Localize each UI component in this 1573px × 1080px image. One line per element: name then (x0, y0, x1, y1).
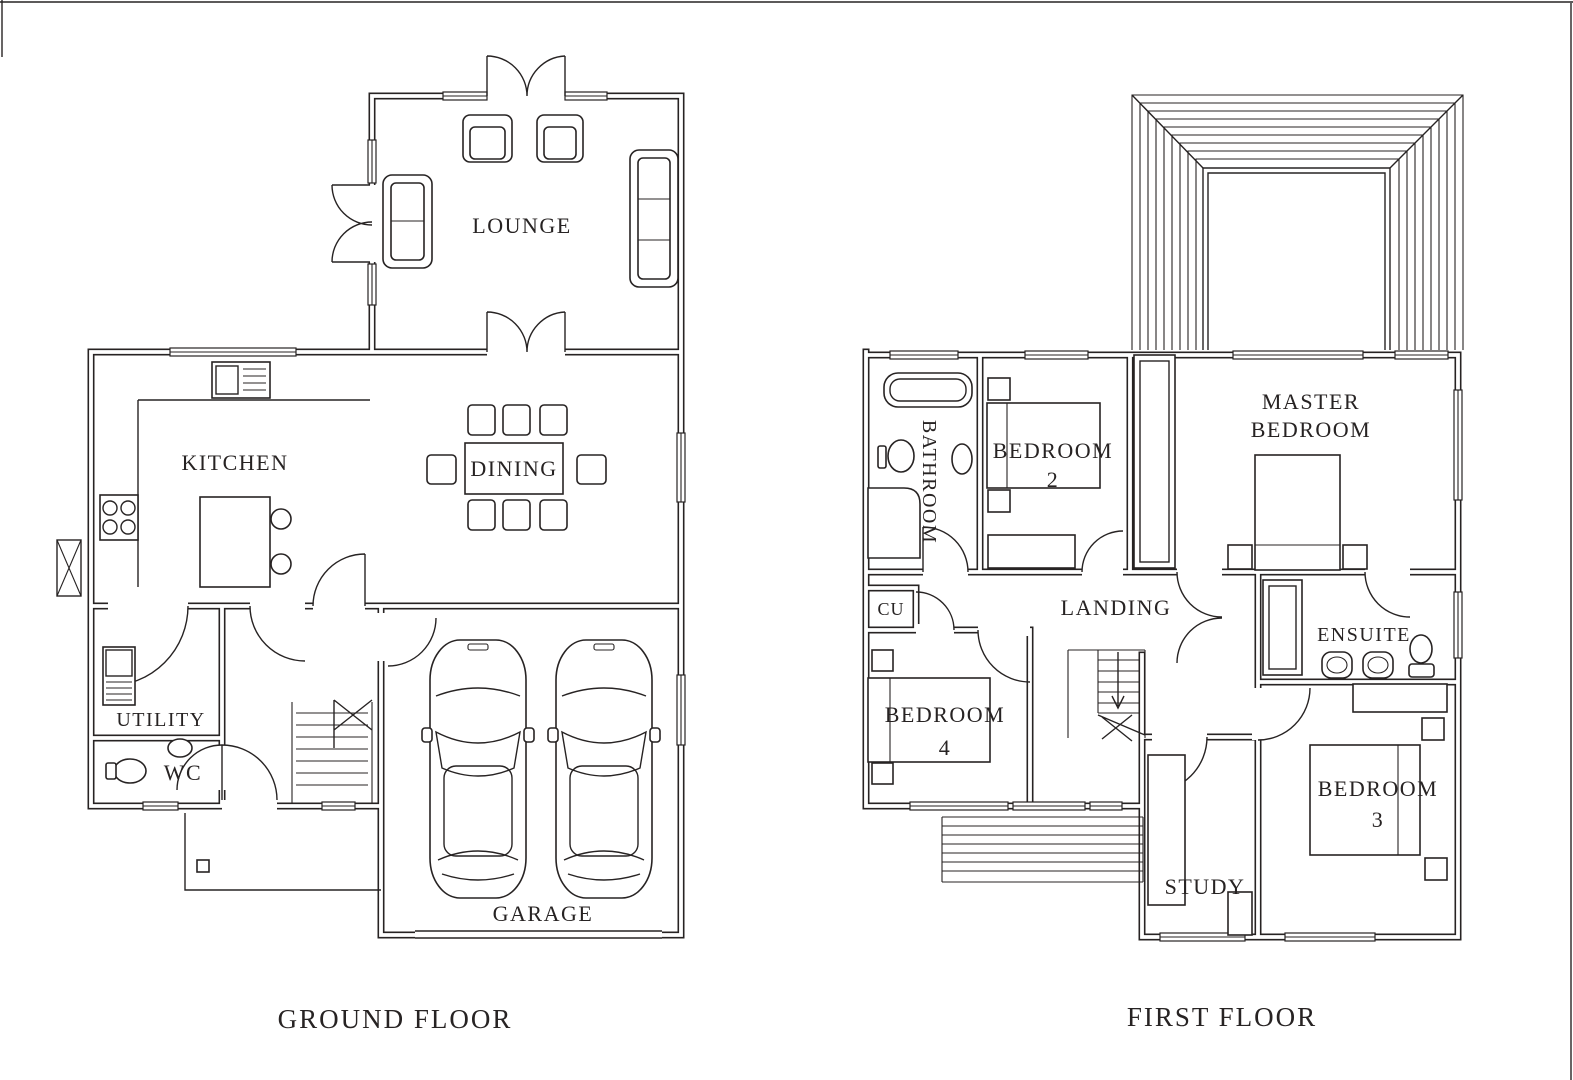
chair (468, 500, 495, 530)
basin-icon (952, 444, 972, 474)
nightstand (872, 650, 893, 671)
window (1285, 933, 1375, 941)
nightstand (1422, 718, 1444, 740)
armchair (537, 115, 583, 162)
ground-floor-labels: LOUNGE KITCHEN DINING UTILITY WC GARAGE … (116, 213, 593, 1034)
window (677, 433, 685, 502)
window (322, 802, 355, 810)
floor-plan-drawing: LOUNGE KITCHEN DINING UTILITY WC GARAGE … (0, 0, 1573, 1080)
window (368, 264, 376, 305)
chair (540, 500, 567, 530)
chair (503, 405, 530, 435)
hall-garage-door (388, 618, 436, 666)
window (443, 92, 487, 100)
room-label-study: STUDY (1165, 874, 1246, 899)
chair (540, 405, 567, 435)
room-label-bathroom: BATHROOM (918, 420, 940, 544)
master-bedroom-furniture (1134, 355, 1367, 570)
toilet-icon (106, 759, 146, 783)
hob-icon (100, 495, 138, 540)
nightstand (872, 763, 893, 784)
room-label-bedroom2: BEDROOM (993, 438, 1114, 463)
first-floor-plan: BATHROOM BEDROOM 2 MASTER BEDROOM CU LAN… (866, 95, 1463, 1032)
window (170, 348, 296, 356)
kitchen-hall-door (250, 606, 305, 661)
nightstand (1228, 545, 1252, 569)
floor-plan-sheet: LOUNGE KITCHEN DINING UTILITY WC GARAGE … (0, 0, 1573, 1080)
toilet-icon (878, 440, 914, 472)
bedroom2-door (1082, 531, 1123, 572)
range-cooker-icon (212, 362, 270, 398)
sofa (383, 175, 432, 268)
room-label-utility: UTILITY (116, 709, 205, 731)
window (1233, 351, 1363, 359)
garage-cars (422, 640, 660, 898)
stair-break-mark (1098, 715, 1145, 741)
window (1454, 592, 1462, 658)
lounge-furniture (383, 115, 678, 287)
chair (468, 405, 495, 435)
window (1013, 802, 1085, 810)
nightstand (1343, 545, 1367, 569)
room-label-master-line1: MASTER (1262, 389, 1360, 414)
first-floor-title: FIRST FLOOR (1127, 1002, 1317, 1032)
ensuite-door (1365, 572, 1410, 617)
stair-direction-flag (334, 700, 372, 748)
bathtub-icon (884, 373, 972, 407)
bed (1255, 455, 1340, 570)
toilet-icon (1409, 635, 1434, 677)
ground-floor-plan: LOUNGE KITCHEN DINING UTILITY WC GARAGE … (57, 56, 685, 1034)
room-label-bedroom4: BEDROOM (885, 702, 1006, 727)
bay-roof-hatch (942, 817, 1143, 882)
window (143, 802, 178, 810)
room-label-ensuite: ENSUITE (1317, 624, 1411, 646)
bedroom2-furniture (987, 378, 1100, 568)
dresser (988, 535, 1075, 568)
nightstand (988, 490, 1010, 512)
nightstand (1425, 858, 1447, 880)
car-icon (422, 640, 534, 898)
room-label-dining: DINING (470, 456, 557, 481)
bedroom4-door (978, 630, 1030, 682)
room-label-wc: WC (164, 760, 202, 785)
wardrobe (1353, 684, 1447, 712)
room-label-cu: CU (877, 599, 904, 619)
window (368, 140, 376, 183)
basin-icon (1322, 652, 1352, 678)
stool (271, 509, 291, 529)
window (910, 802, 1008, 810)
window (1090, 802, 1122, 810)
study-furniture (1148, 755, 1252, 935)
front-door (222, 745, 277, 800)
window (1454, 390, 1462, 500)
room-label-bedroom2-number: 2 (1047, 467, 1060, 492)
chair (503, 500, 530, 530)
room-label-bedroom4-number: 4 (939, 735, 952, 760)
nightstand (988, 378, 1010, 400)
first-floor-stairs (1068, 650, 1145, 741)
shower-icon (1263, 580, 1302, 675)
master-bedroom-door (1177, 572, 1222, 617)
window (1025, 351, 1088, 359)
room-label-landing: LANDING (1061, 595, 1172, 620)
ground-floor-stairs (292, 700, 372, 804)
room-label-bedroom3-number: 3 (1372, 807, 1385, 832)
meter-box-icon (57, 540, 81, 596)
roof-hatch (1132, 95, 1463, 350)
room-label-bedroom3: BEDROOM (1318, 776, 1439, 801)
porch-post (197, 860, 209, 872)
sofa (630, 150, 678, 287)
porch-outline (185, 813, 381, 890)
dining-hall-door (313, 554, 365, 606)
landing-lobby-door (1177, 618, 1222, 663)
window (890, 351, 958, 359)
chair (577, 455, 606, 484)
stool (271, 554, 291, 574)
room-label-kitchen: KITCHEN (181, 450, 288, 475)
room-label-lounge: LOUNGE (472, 213, 571, 238)
ground-floor-title: GROUND FLOOR (278, 1004, 513, 1034)
armchair (463, 115, 512, 162)
basin-icon (168, 739, 192, 757)
chair (427, 455, 456, 484)
bedroom3-door (1258, 688, 1310, 740)
window (1395, 351, 1448, 359)
kitchen-island (200, 497, 291, 587)
shower-icon (868, 488, 920, 558)
washing-machine-icon (103, 647, 135, 705)
window (565, 92, 607, 100)
room-label-master-line2: BEDROOM (1251, 417, 1372, 442)
window (677, 675, 685, 745)
car-icon (548, 640, 660, 898)
basin-icon (1363, 652, 1393, 678)
room-label-garage: GARAGE (493, 901, 594, 926)
